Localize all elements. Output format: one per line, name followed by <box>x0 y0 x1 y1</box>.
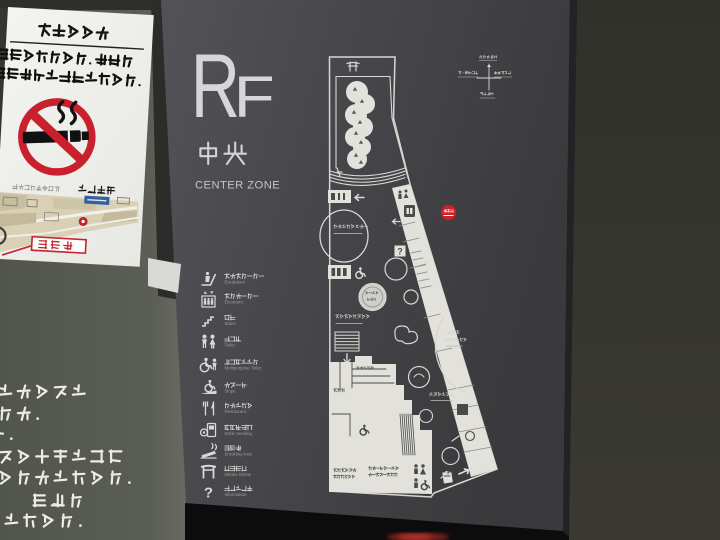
svg-text:Drink Vending: Drink Vending <box>225 431 253 436</box>
svg-text:Mitake Shrine: Mitake Shrine <box>225 472 252 477</box>
svg-text:?: ? <box>204 485 213 502</box>
svg-text:Multipurpose Toilet: Multipurpose Toilet <box>225 366 262 371</box>
svg-text:Stairs: Stairs <box>225 321 237 326</box>
svg-text:F: F <box>234 65 275 130</box>
svg-text:Elevators: Elevators <box>225 300 244 305</box>
svg-text:Information: Information <box>225 492 248 497</box>
svg-text:Smoking Area: Smoking Area <box>225 452 253 457</box>
svg-text:R: R <box>191 36 240 138</box>
svg-text:Escalators: Escalators <box>225 280 246 285</box>
svg-text:Restaurant: Restaurant <box>225 409 247 414</box>
svg-text:Slope: Slope <box>225 389 237 394</box>
svg-text:?: ? <box>397 247 403 257</box>
svg-text:CENTER ZONE: CENTER ZONE <box>195 180 280 192</box>
svg-text:Toilet: Toilet <box>225 343 236 348</box>
